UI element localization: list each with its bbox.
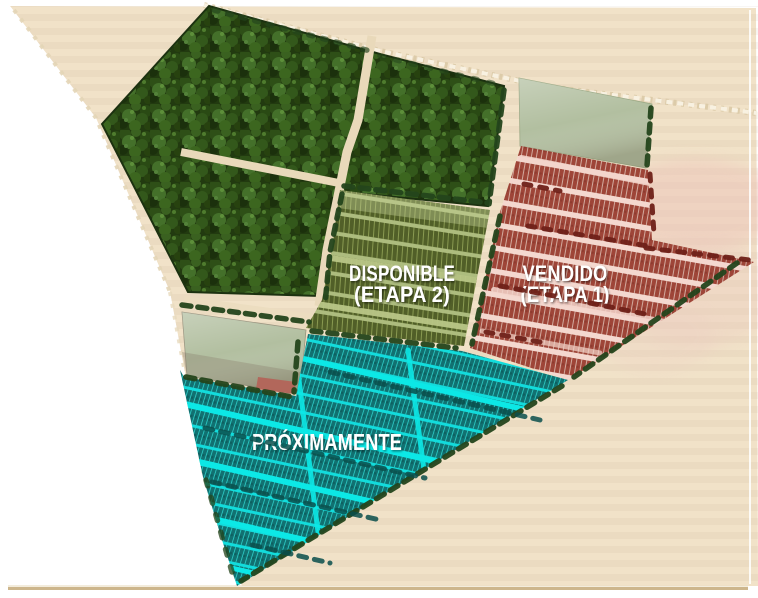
page-bottom-strip	[0, 591, 758, 598]
zone-etapa2-stage-label: (ETAPA 2)	[354, 282, 450, 307]
masterplan-svg: DISPONIBLE (ETAPA 2) VENDIDO (ETAPA 1) P…	[0, 0, 758, 598]
masterplan-map: DISPONIBLE (ETAPA 2) VENDIDO (ETAPA 1) P…	[0, 0, 758, 598]
page-top-strip	[0, 0, 758, 6]
